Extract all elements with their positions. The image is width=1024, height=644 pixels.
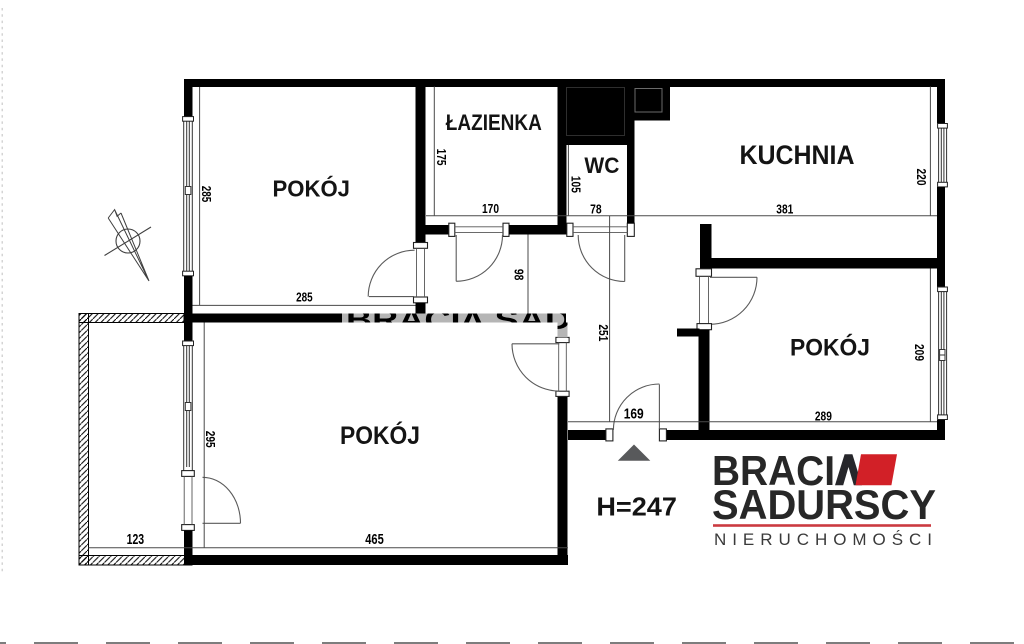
svg-text:295: 295 (203, 431, 218, 448)
svg-text:KUCHNIA: KUCHNIA (740, 140, 855, 170)
svg-text:175: 175 (434, 149, 449, 166)
svg-text:78: 78 (590, 201, 602, 216)
svg-text:169: 169 (624, 406, 644, 422)
svg-text:105: 105 (569, 176, 584, 193)
svg-text:251: 251 (596, 324, 611, 341)
svg-text:285: 285 (296, 290, 313, 305)
svg-text:381: 381 (776, 201, 793, 216)
svg-text:H=247: H=247 (596, 491, 677, 521)
svg-text:ŁAZIENKA: ŁAZIENKA (446, 110, 542, 135)
svg-text:285: 285 (199, 186, 214, 203)
svg-text:289: 289 (815, 409, 832, 424)
svg-text:220: 220 (914, 169, 929, 186)
svg-text:465: 465 (365, 532, 384, 548)
svg-text:98: 98 (512, 269, 527, 281)
svg-text:209: 209 (912, 344, 927, 361)
svg-text:170: 170 (482, 201, 499, 216)
svg-text:NIERUCHOMOŚCI: NIERUCHOMOŚCI (714, 530, 932, 549)
svg-text:POKÓJ: POKÓJ (273, 175, 351, 202)
svg-text:POKÓJ: POKÓJ (790, 334, 870, 362)
svg-text:POKÓJ: POKÓJ (340, 420, 420, 450)
svg-text:WC: WC (584, 153, 619, 178)
svg-text:SADURSCY: SADURSCY (712, 481, 936, 528)
svg-text:123: 123 (127, 532, 145, 548)
